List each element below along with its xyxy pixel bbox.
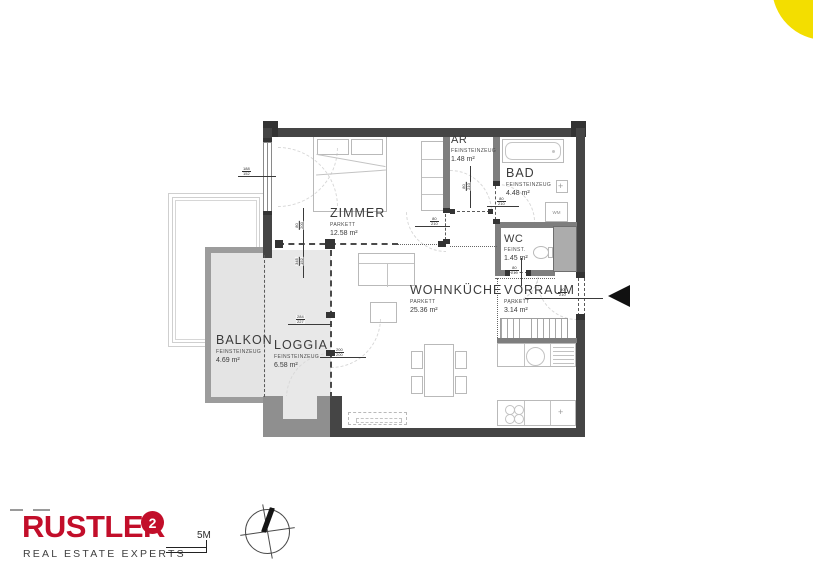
wall-wc-west xyxy=(495,228,501,272)
room-name: AR xyxy=(451,134,496,146)
room-name: WOHNKÜCHE xyxy=(410,283,502,297)
sink-plus-icon: + xyxy=(558,408,563,417)
dimline-window xyxy=(238,176,276,177)
room-material: PARKETT xyxy=(410,299,502,305)
post-loggia-mullion-a xyxy=(326,312,335,318)
shaft xyxy=(553,226,577,272)
post-ar-door-w xyxy=(450,209,455,214)
room-area: 25.36 m² xyxy=(410,307,502,314)
chair-3 xyxy=(455,351,467,369)
window-post-bottom xyxy=(263,211,272,215)
room-material: FEINSTEINZEUG xyxy=(216,349,273,355)
dimline-bad-door xyxy=(487,206,519,207)
sofa xyxy=(358,253,415,286)
logo-mark-glyph: 2 xyxy=(149,515,157,531)
room-material: PARKETT xyxy=(330,222,385,228)
washing-machine-label: WM xyxy=(546,203,567,221)
dashline-entrance-b xyxy=(584,278,585,316)
floorplan-page: + + WM 188152 80200 345152 284227 200200… xyxy=(0,0,813,567)
dimline-loggia-door xyxy=(288,324,332,325)
room-label-loggia: LOGGIA FEINSTEINZEUG 6.58 m² xyxy=(274,338,328,369)
room-name: WC xyxy=(504,233,528,245)
dashline-entrance-a xyxy=(578,278,579,316)
room-label-bad: BAD FEINSTEINZEUG 4.48 m² xyxy=(506,166,551,197)
room-material: FEINSTEINZEUG xyxy=(451,148,496,154)
dashline-ar-door xyxy=(452,211,490,212)
wardrobe xyxy=(421,141,445,211)
scale-bar-line-top xyxy=(166,547,207,548)
post-ar-door-e xyxy=(488,209,493,214)
wall-zimmer-east xyxy=(443,137,450,212)
room-area: 4.69 m² xyxy=(216,357,273,364)
room-material: FEINSTEINZEUG xyxy=(274,354,328,360)
room-name: BAD xyxy=(506,166,551,180)
coffee-table xyxy=(370,302,397,323)
room-label-ar: AR FEINSTEINZEUG 1.48 m² xyxy=(451,134,496,163)
dotline-nook-south xyxy=(450,246,497,247)
room-label-balkon: BALKON FEINSTEINZEUG 4.69 m² xyxy=(216,333,273,364)
bathtub xyxy=(502,139,564,163)
kitchen-sink-icon xyxy=(526,347,545,366)
rustler-logo-mark-icon: 2 xyxy=(141,511,164,534)
room-area: 12.58 m² xyxy=(330,230,385,237)
scale-bar-label: 5M xyxy=(197,530,211,541)
post-entrance-s xyxy=(576,314,585,320)
dining-table xyxy=(424,344,454,397)
north-compass-icon xyxy=(245,509,290,554)
hob-burner-icon xyxy=(514,414,524,424)
chair-1 xyxy=(411,351,423,369)
sideboard xyxy=(348,412,407,425)
room-area: 6.58 m² xyxy=(274,362,328,369)
post-loggia-junction xyxy=(325,239,335,249)
bathtub-drain-icon xyxy=(552,150,555,153)
room-label-wohnkueche: WOHNKÜCHE PARKETT 25.36 m² xyxy=(410,283,502,314)
post-wc-door-e xyxy=(526,270,531,276)
dim-ar-door: 80210 xyxy=(462,182,471,191)
room-area: 1.45 m² xyxy=(504,255,528,262)
kitchen-counter-lower xyxy=(497,400,576,426)
window-zimmer-west xyxy=(263,142,272,213)
chair-4 xyxy=(455,376,467,394)
dim-loggia-fixed: 345152 xyxy=(295,257,304,266)
room-area: 3.14 m² xyxy=(504,307,575,314)
post-entrance-n xyxy=(576,272,585,278)
scale-bar-line-bottom xyxy=(166,552,207,553)
room-label-wc: WC FEINST. 1.45 m² xyxy=(504,233,528,262)
post-zimmer-door-n xyxy=(443,208,450,213)
toilet-bowl xyxy=(533,246,549,259)
dimline-wc-door xyxy=(521,258,522,286)
window-post-top xyxy=(263,138,272,142)
dim-bad-door: 80210 xyxy=(497,197,506,206)
balkon-area xyxy=(205,247,266,403)
room-label-vorraum: VORRAUM PARKETT 3.14 m² xyxy=(504,283,575,314)
dashline-zimmer-south xyxy=(278,243,398,245)
chair-2 xyxy=(411,376,423,394)
rustler-tagline: REAL ESTATE EXPERTS xyxy=(23,548,186,560)
room-name: LOGGIA xyxy=(274,338,328,352)
wall-north xyxy=(263,128,585,137)
wall-vorraum-south xyxy=(497,338,577,343)
kitchen-counter-upper xyxy=(497,343,576,367)
post-zimmer-door-s xyxy=(443,239,450,244)
dashline-zimmer-door xyxy=(445,214,446,240)
dim-zimmer-door: 80200 xyxy=(295,221,304,230)
dotline-wc-vorraum xyxy=(495,278,555,279)
room-name: VORRAUM xyxy=(504,283,575,297)
dim-window-left: 188152 xyxy=(242,167,251,176)
room-name: ZIMMER xyxy=(330,206,385,220)
dim-loggia-door: 284227 xyxy=(296,315,305,324)
bed-pillow-left xyxy=(317,139,349,155)
dim-zimmer-east-door: 80210 xyxy=(430,217,439,226)
dashline-bad-door xyxy=(495,186,496,220)
room-name: BALKON xyxy=(216,333,273,347)
washing-machine: WM xyxy=(545,202,568,222)
entrance-arrow-icon xyxy=(608,285,630,307)
loggia-bottom-notch xyxy=(283,396,317,419)
coat-closet xyxy=(500,318,568,339)
room-label-zimmer: ZIMMER PARKETT 12.58 m² xyxy=(330,206,385,237)
kitchen-drainer-icon xyxy=(553,347,574,364)
room-area: 4.48 m² xyxy=(506,190,551,197)
dotline-zimmer-south xyxy=(398,244,443,245)
wall-east-upper xyxy=(576,128,585,278)
scale-bar-tick xyxy=(206,540,207,553)
room-material: FEINSTEINZEUG xyxy=(506,182,551,188)
wall-wc-south-b xyxy=(528,270,555,276)
room-material: PARKETT xyxy=(504,299,575,305)
dim-wc-door: 80210 xyxy=(510,266,519,275)
post-bad-door-s xyxy=(493,219,500,224)
wall-east-lower xyxy=(576,316,585,428)
dashline-balkon-loggia xyxy=(264,255,265,397)
room-area: 1.48 m² xyxy=(451,156,496,163)
dim-loggia-door2: 200200 xyxy=(335,348,344,357)
dimline-zimmer-door xyxy=(303,208,304,278)
wall-south xyxy=(330,428,585,437)
post-zimmer-sw xyxy=(275,240,283,248)
corner-accent-circle xyxy=(772,0,813,40)
room-material: FEINST. xyxy=(504,247,528,253)
wall-west-mid xyxy=(263,213,272,258)
sink-plus-icon: + xyxy=(558,182,563,191)
bed-pillow-right xyxy=(351,139,383,155)
dimline-zimmer-east-door xyxy=(415,226,450,227)
window-mullion xyxy=(267,143,268,212)
post-bad-door-n xyxy=(493,181,500,186)
